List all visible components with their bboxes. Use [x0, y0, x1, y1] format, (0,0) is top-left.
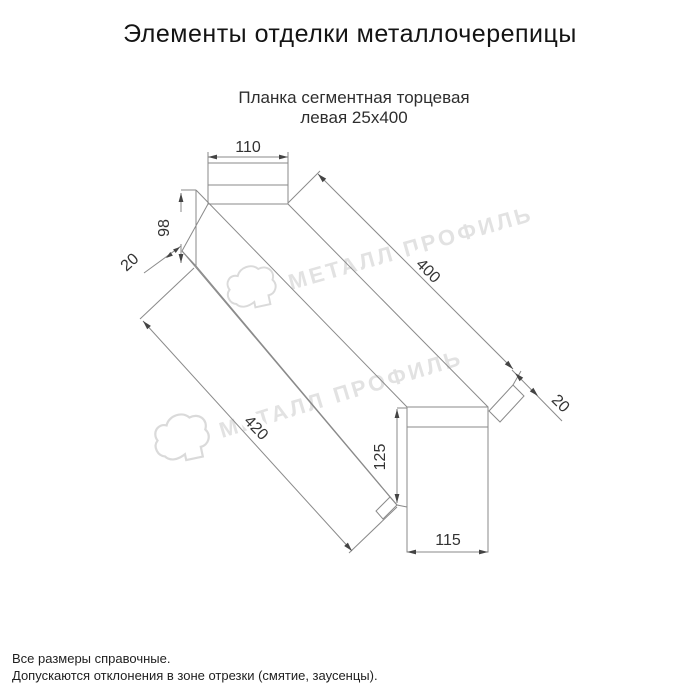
technical-drawing: МЕТАЛЛ ПРОФИЛЬ МЕТАЛЛ ПРОФИЛЬ — [0, 0, 700, 700]
dim-label-20-left: 20 — [118, 250, 143, 275]
brand-cloud-logo-icon — [150, 409, 213, 465]
footer-notes: Все размеры справочные. Допускаются откл… — [12, 650, 378, 684]
dim-label-98: 98 — [156, 219, 173, 237]
page: Элементы отделки металлочерепицы Планка … — [0, 0, 700, 700]
watermark-text: МЕТАЛЛ ПРОФИЛЬ — [285, 201, 535, 295]
dim-label-20-right: 20 — [548, 392, 573, 417]
dim-label-110: 110 — [235, 139, 261, 156]
brand-cloud-logo-icon — [223, 262, 279, 313]
footer-note-2: Допускаются отклонения в зоне отрезки (с… — [12, 667, 378, 684]
dim-label-125: 125 — [372, 444, 389, 471]
watermark-lower: МЕТАЛЛ ПРОФИЛЬ — [150, 345, 466, 466]
watermark-upper: МЕТАЛЛ ПРОФИЛЬ — [223, 201, 536, 312]
dim-label-115: 115 — [435, 532, 461, 549]
footer-note-1: Все размеры справочные. — [12, 650, 378, 667]
